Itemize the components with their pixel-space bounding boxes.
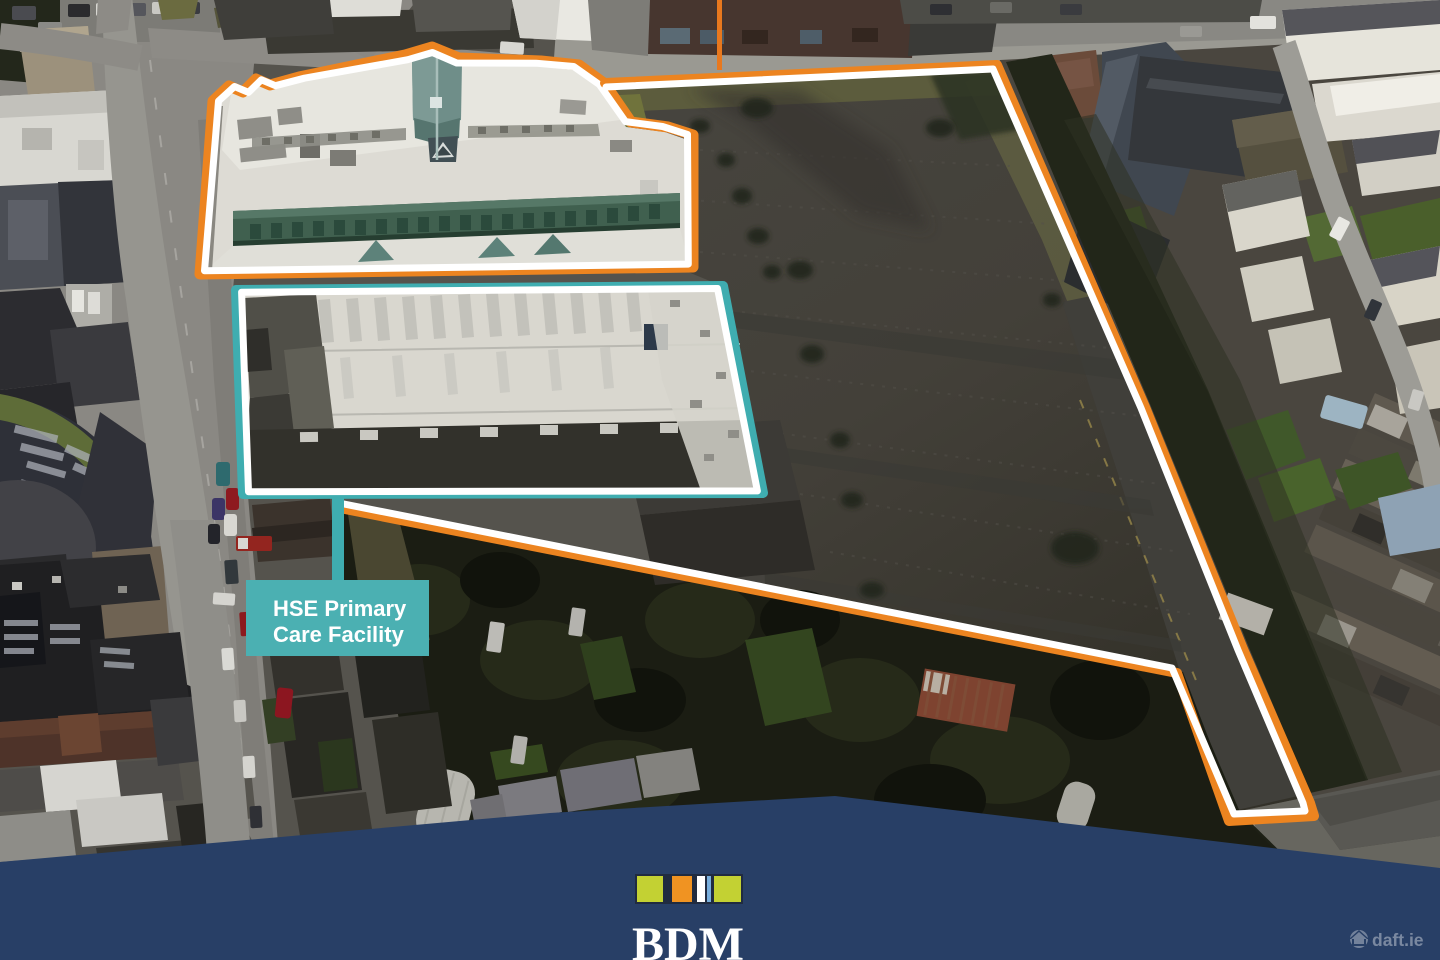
svg-text:BDM: BDM (632, 918, 744, 960)
svg-text:HSE Primary: HSE Primary (273, 596, 407, 621)
svg-text:daft.ie: daft.ie (1372, 930, 1424, 950)
svg-text:Care Facility: Care Facility (273, 622, 405, 647)
